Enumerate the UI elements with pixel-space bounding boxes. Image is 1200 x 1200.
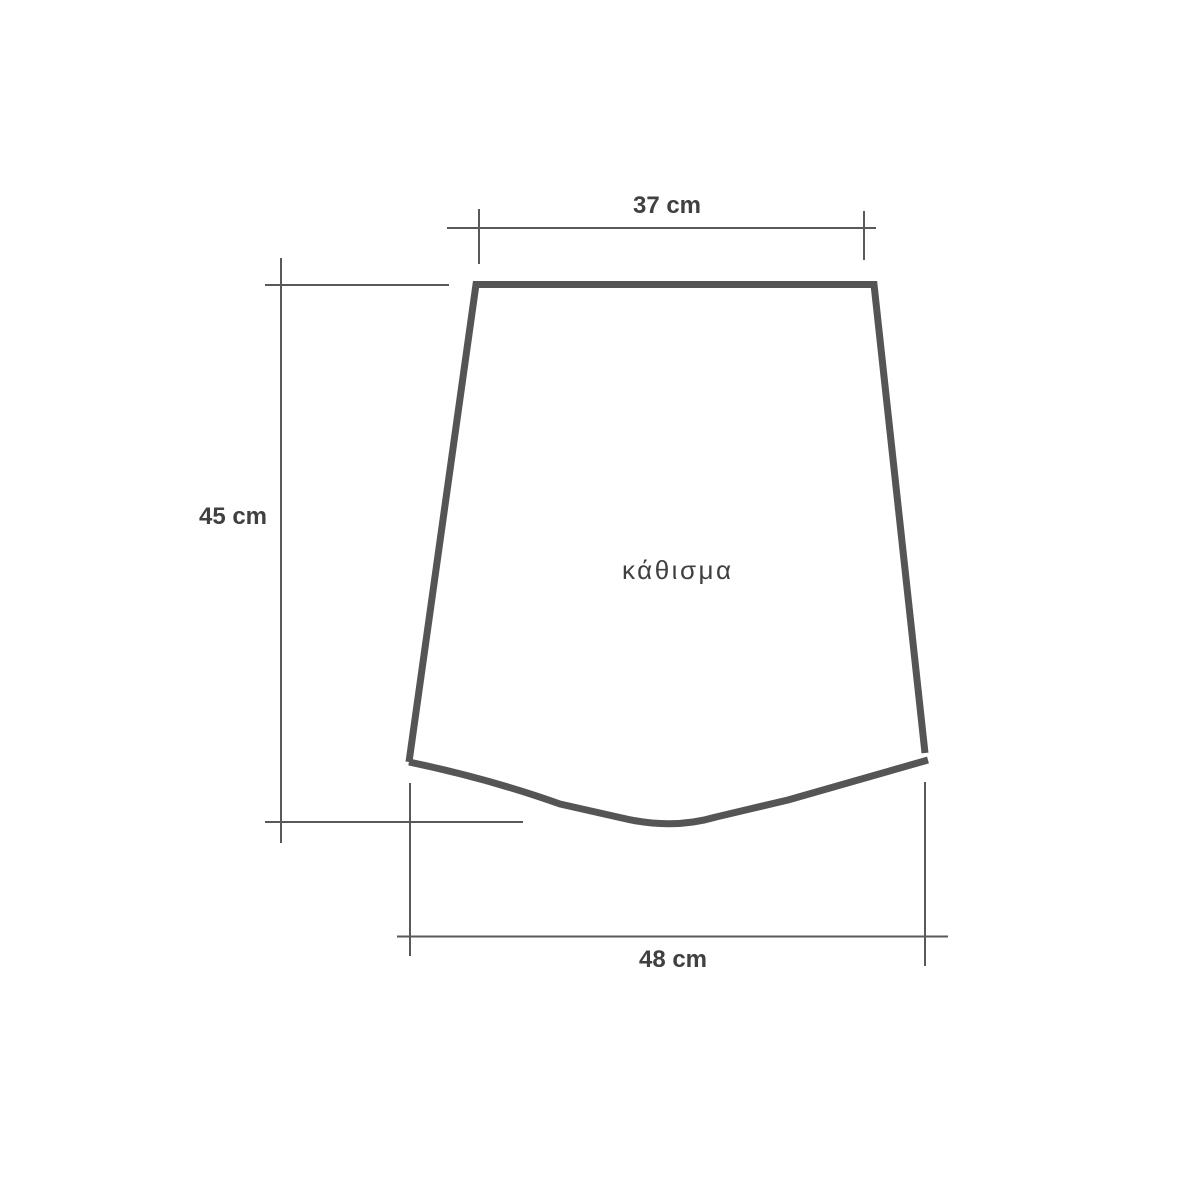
svg-text:κάθισμα: κάθισμα [622,555,734,585]
svg-text:45 cm: 45 cm [199,503,267,530]
svg-text:37 cm: 37 cm [633,192,701,219]
svg-text:48 cm: 48 cm [639,946,707,973]
